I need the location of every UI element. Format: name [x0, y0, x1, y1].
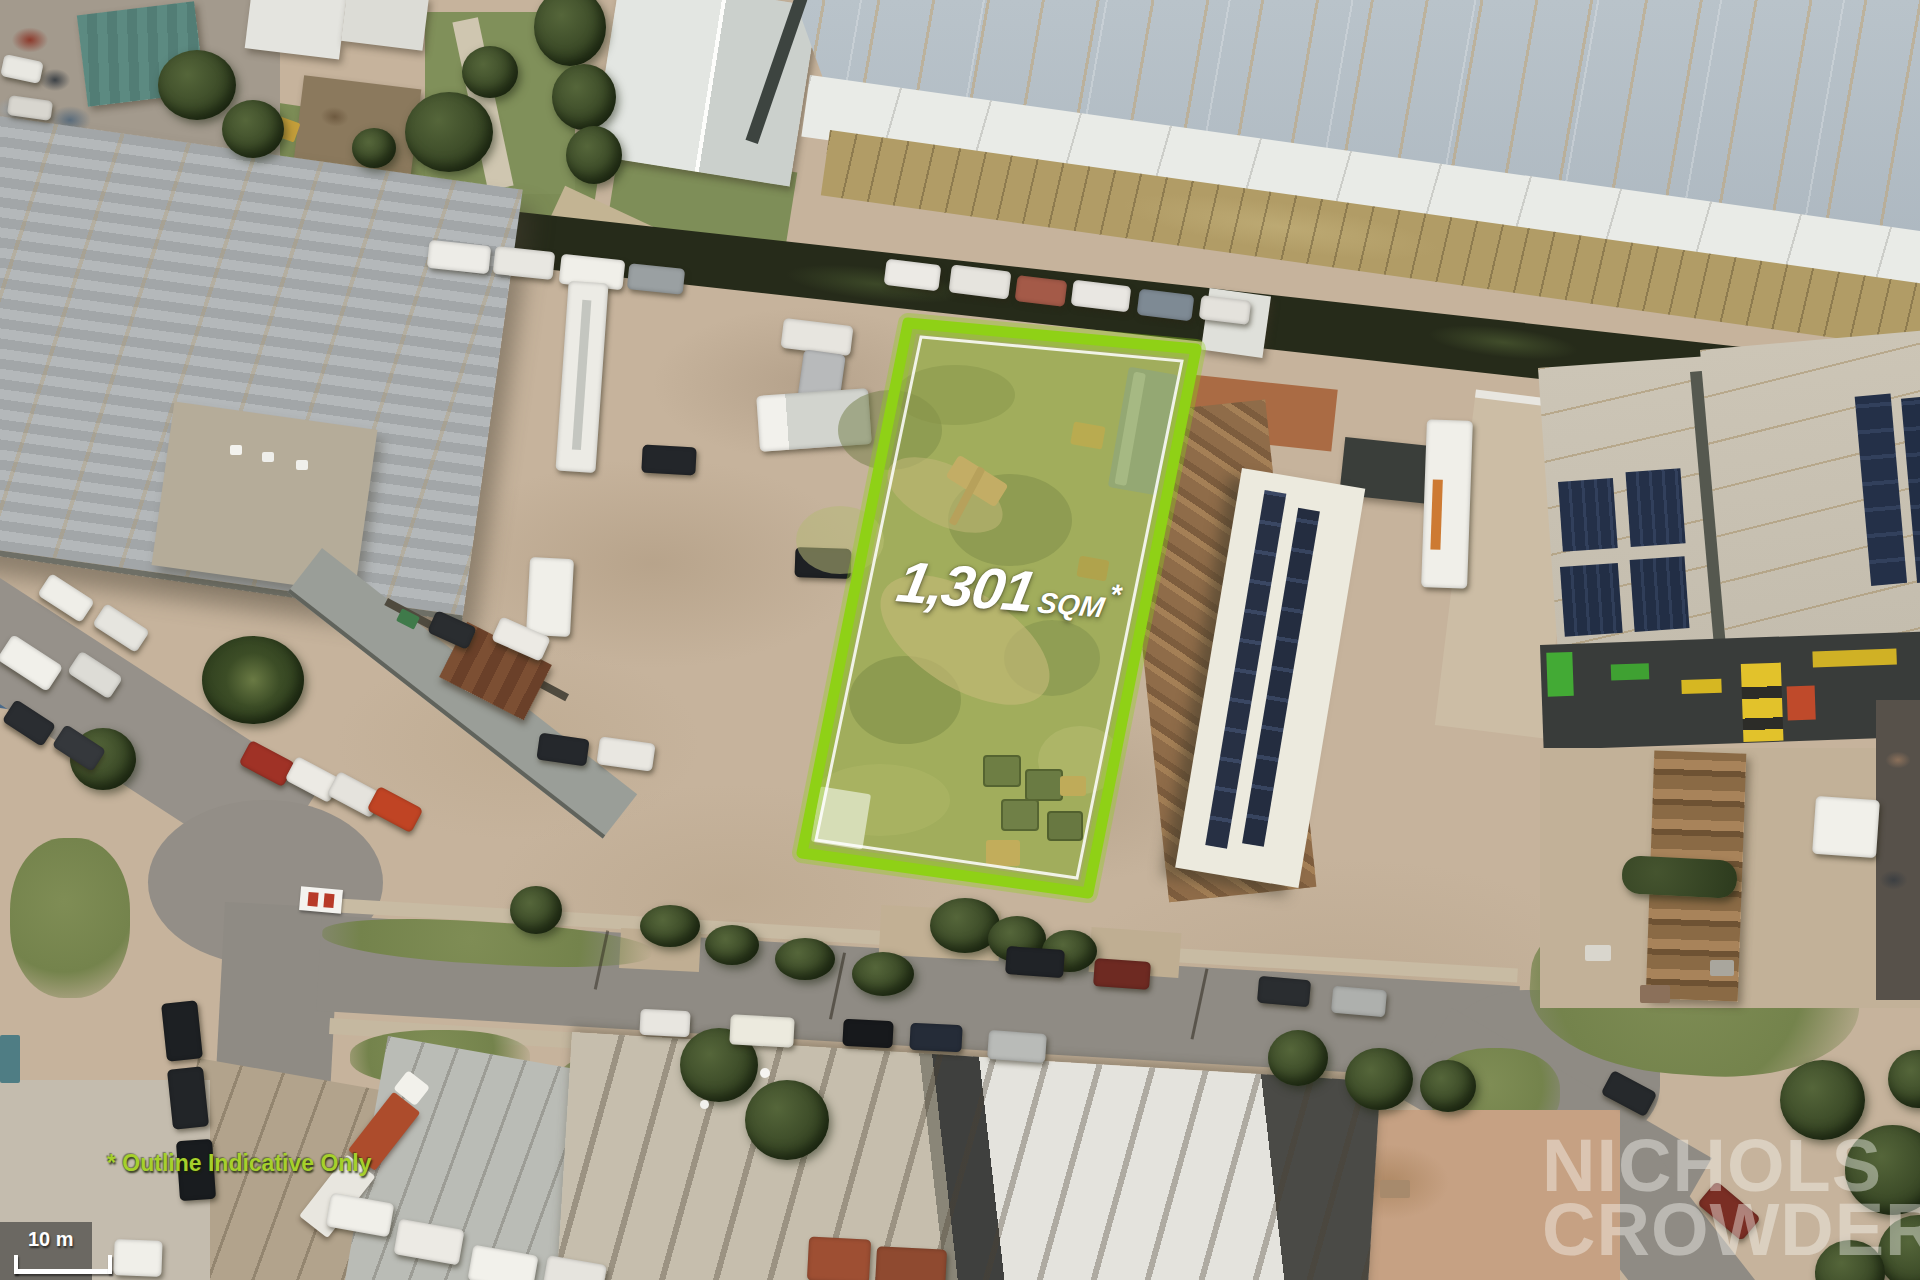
scale-bar-tick-right — [108, 1255, 112, 1274]
parcel-overlay — [0, 0, 1920, 1280]
watermark: NICHOLS CROWDER — [1542, 1134, 1920, 1262]
scale-bar-line — [14, 1255, 114, 1274]
watermark-line2: CROWDER — [1542, 1198, 1920, 1262]
scale-bar-label: 10 m — [28, 1228, 134, 1251]
scale-bar: 10 m — [14, 1228, 134, 1274]
area-value: 1,301 — [892, 549, 1039, 624]
disclaimer-note: * Outline Indicative Only — [107, 1150, 372, 1177]
aerial-photo: 1,301SQM* * Outline Indicative Only 10 m… — [0, 0, 1920, 1280]
area-unit: SQM — [1035, 586, 1107, 623]
scale-bar-rule — [14, 1269, 112, 1274]
